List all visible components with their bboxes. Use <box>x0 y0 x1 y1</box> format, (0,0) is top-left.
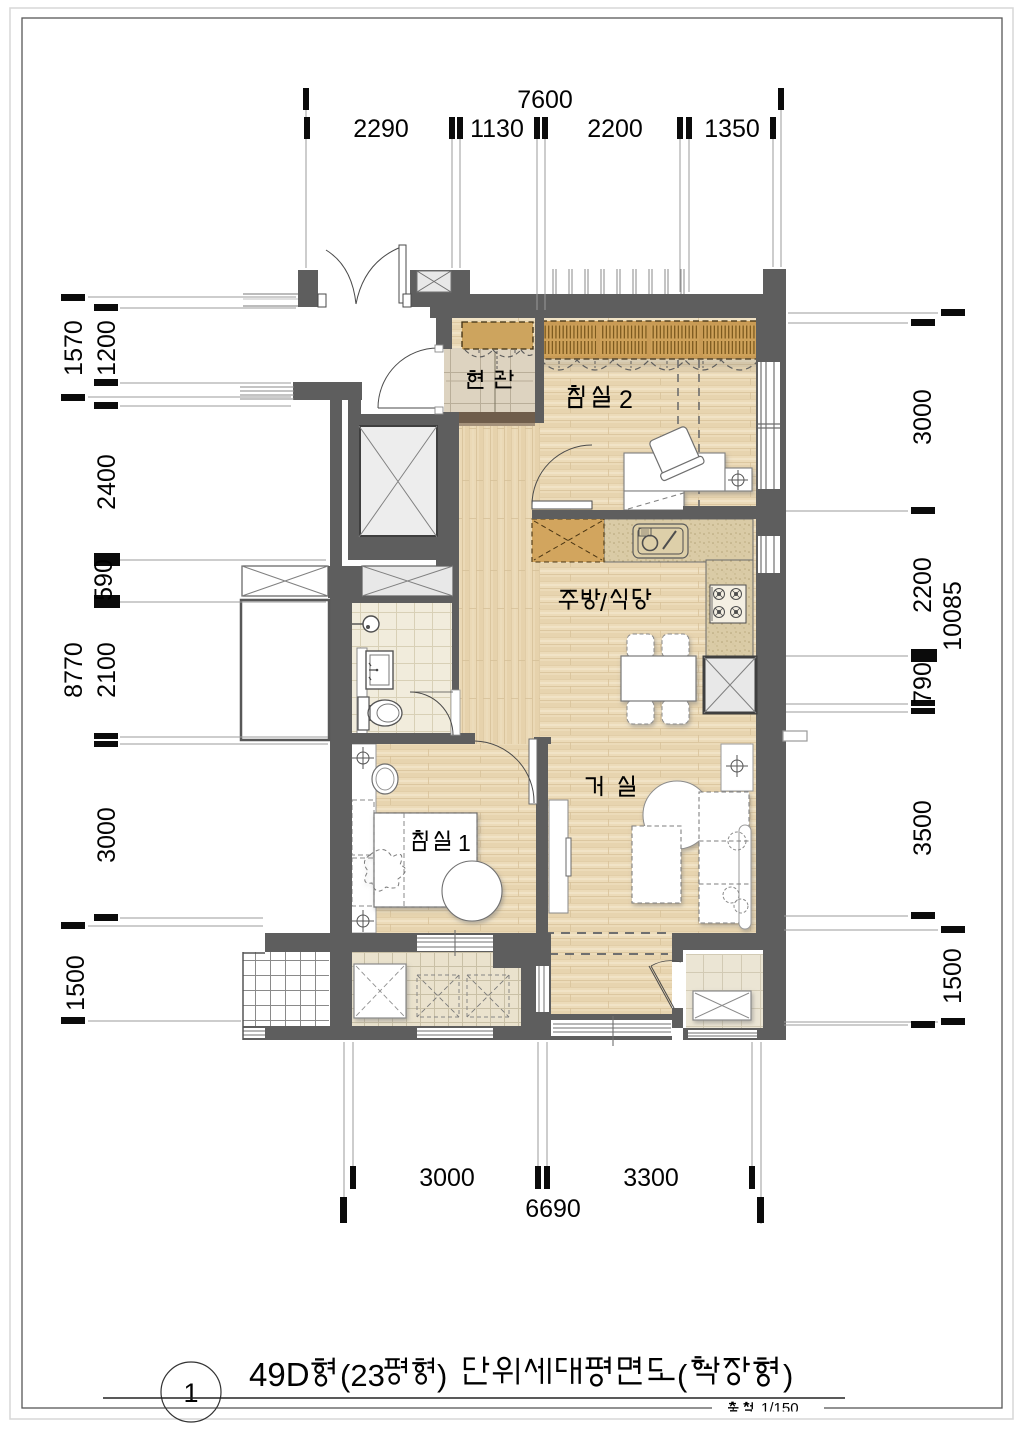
svg-text:1: 1 <box>183 1378 198 1408</box>
svg-text:1130: 1130 <box>470 115 524 143</box>
svg-text:3000: 3000 <box>909 389 937 445</box>
svg-text:1500: 1500 <box>62 955 90 1011</box>
svg-text:3500: 3500 <box>909 800 937 856</box>
svg-text:): ) <box>783 1358 793 1393</box>
svg-text:1: 1 <box>458 830 471 856</box>
svg-text:2200: 2200 <box>909 557 937 613</box>
svg-text:2: 2 <box>619 386 633 414</box>
svg-text:2400: 2400 <box>93 454 121 510</box>
svg-text:1570: 1570 <box>60 320 88 376</box>
svg-text:10085: 10085 <box>939 581 967 651</box>
svg-text:(: ( <box>677 1358 688 1393</box>
svg-text:/: / <box>600 589 607 617</box>
svg-text:3000: 3000 <box>419 1164 475 1192</box>
svg-text:2290: 2290 <box>353 115 409 143</box>
svg-text:3000: 3000 <box>93 807 121 863</box>
svg-text:790: 790 <box>909 662 937 704</box>
svg-text:1350: 1350 <box>704 115 760 143</box>
svg-text:1500: 1500 <box>939 948 967 1004</box>
svg-text:8770: 8770 <box>60 642 88 698</box>
svg-text:590: 590 <box>90 559 118 601</box>
svg-text:): ) <box>437 1358 447 1393</box>
svg-text:(23: (23 <box>340 1358 385 1393</box>
svg-text:1200: 1200 <box>93 320 121 376</box>
svg-text:3300: 3300 <box>623 1164 679 1192</box>
svg-text:49D: 49D <box>249 1356 310 1393</box>
svg-text:7600: 7600 <box>517 86 573 114</box>
svg-text:2200: 2200 <box>587 115 643 143</box>
svg-text:2100: 2100 <box>93 642 121 698</box>
svg-text:6690: 6690 <box>525 1195 581 1223</box>
